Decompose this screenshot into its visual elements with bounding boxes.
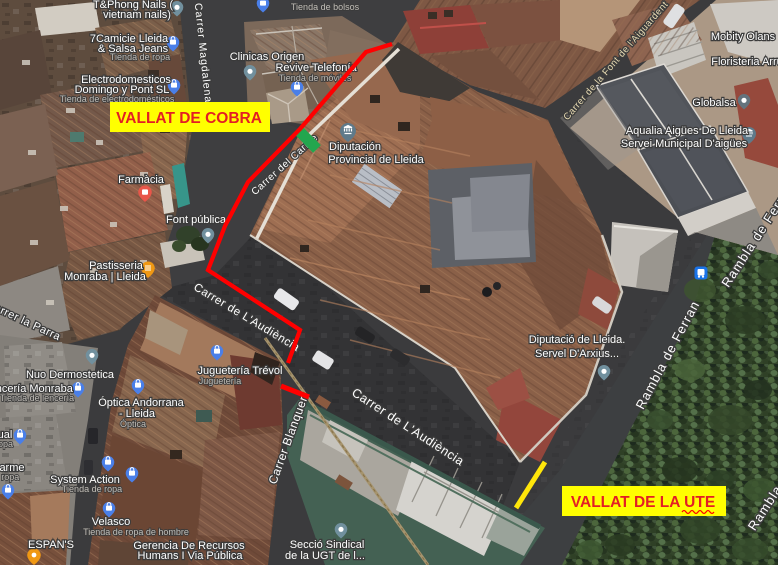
svg-text:Servei Municipal D'aigües: Servei Municipal D'aigües — [621, 138, 748, 150]
svg-text:de ropa: de ropa — [0, 472, 19, 482]
svg-text:Globalsa: Globalsa — [692, 97, 736, 109]
svg-text:Servel D'Arxius...: Servel D'Arxius... — [535, 348, 619, 360]
svg-text:Diputación: Diputación — [329, 141, 381, 153]
svg-text:ESPAN'S: ESPAN'S — [28, 539, 74, 551]
svg-text:de la UGT de l...: de la UGT de l... — [285, 550, 365, 562]
svg-text:VALLAT DE LA UTE: VALLAT DE LA UTE — [571, 494, 715, 511]
svg-text:Humans I Via Pública: Humans I Via Pública — [138, 550, 244, 562]
svg-text:Tienda de ropa: Tienda de ropa — [110, 52, 170, 62]
svg-text:ropa: ropa — [0, 439, 13, 449]
svg-text:Farmàcia: Farmàcia — [118, 174, 165, 186]
svg-text:Tienda de ropa de hombre: Tienda de ropa de hombre — [83, 527, 189, 537]
svg-text:vietnam nails): vietnam nails) — [103, 9, 171, 21]
svg-text:Nuo Dermostetica: Nuo Dermostetica — [26, 369, 115, 381]
svg-text:Diputació de Lleida.: Diputació de Lleida. — [529, 334, 626, 346]
svg-text:Floristeria Arru: Floristeria Arru — [711, 56, 778, 68]
svg-text:Tienda de bolsos: Tienda de bolsos — [291, 2, 360, 12]
svg-text:Monraba | Lleida: Monraba | Lleida — [64, 271, 147, 283]
svg-text:Aqualia Aigües De Lleida: Aqualia Aigües De Lleida — [626, 125, 749, 137]
svg-text:VALLAT DE COBRA: VALLAT DE COBRA — [116, 110, 262, 127]
svg-text:Mobity Olans: Mobity Olans — [711, 31, 776, 43]
svg-text:Provincial de Lleida: Provincial de Lleida — [328, 154, 424, 166]
svg-text:Font pública: Font pública — [166, 214, 227, 226]
svg-text:Tienda de ropa: Tienda de ropa — [62, 484, 122, 494]
svg-text:Óptica: Óptica — [120, 419, 146, 429]
svg-text:Tienda de lencería: Tienda de lencería — [0, 393, 74, 403]
svg-text:Juguetería: Juguetería — [199, 376, 242, 386]
